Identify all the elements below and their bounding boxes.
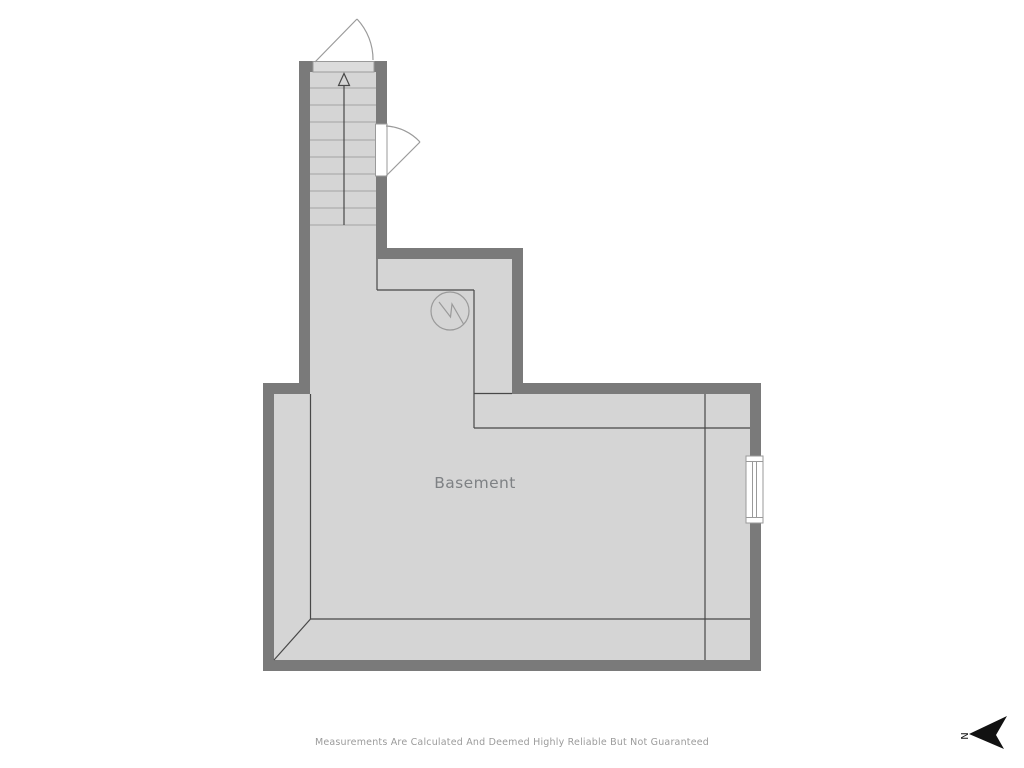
north-dart-icon — [969, 716, 1007, 749]
door-leaf-right — [386, 142, 420, 176]
floor-plan-canvas: Basement Measurements Are Calculated And… — [0, 0, 1024, 768]
disclaimer-text: Measurements Are Calculated And Deemed H… — [315, 737, 709, 748]
door-swing-arc-top — [357, 19, 373, 60]
room-label: Basement — [434, 474, 515, 492]
window-icon — [746, 456, 763, 523]
compass: N — [958, 716, 1007, 749]
side-door-right — [376, 124, 421, 176]
compass-letter: N — [958, 732, 969, 739]
entry-door-top — [313, 19, 374, 72]
floor-area — [274, 72, 750, 660]
water-heater-icon — [431, 292, 469, 330]
floor-plan-page: Basement Measurements Are Calculated And… — [0, 0, 1024, 768]
door-swing-arc-right — [386, 126, 420, 142]
door-gap-right — [376, 124, 388, 176]
door-leaf-top — [315, 19, 357, 62]
door-threshold-top — [313, 62, 374, 73]
